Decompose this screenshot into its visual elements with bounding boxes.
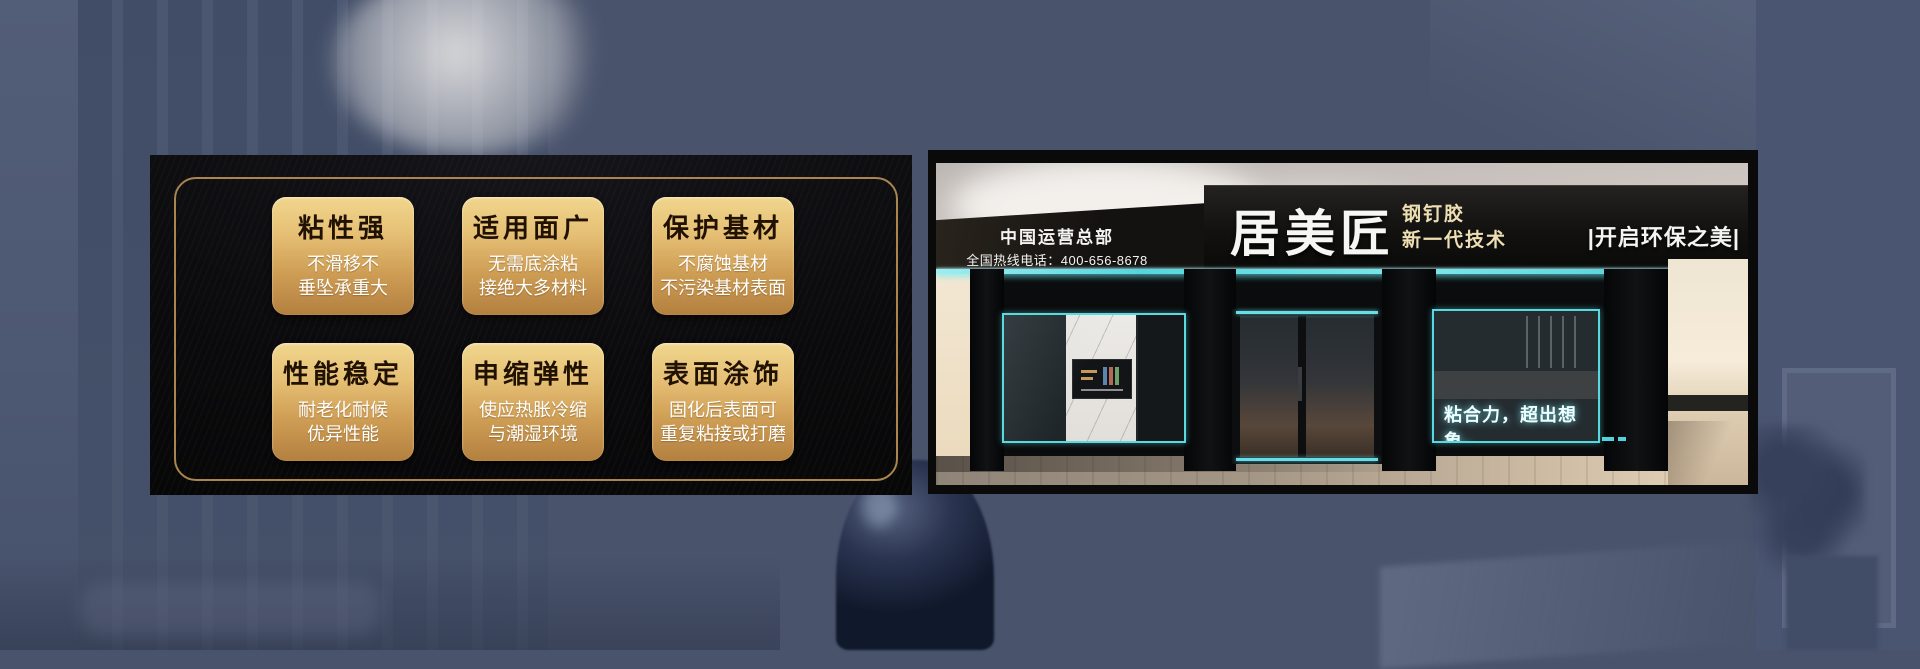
feature-line: 优异性能	[272, 422, 414, 446]
feature-line: 接绝大多材料	[462, 276, 604, 300]
display-window-left	[1002, 313, 1186, 443]
sign-slogan: |开启环保之美|	[1588, 220, 1740, 252]
feature-line: 不滑移不	[272, 252, 414, 276]
feature-line: 重复粘接或打磨	[652, 422, 794, 446]
door-pane	[1240, 316, 1298, 457]
door-led-top	[1236, 311, 1378, 314]
feature-title: 适用面广	[462, 208, 604, 245]
display-window-right: 粘合力，超出想象。	[1432, 309, 1600, 443]
product-line1: 钢钉胶	[1402, 202, 1507, 228]
door-pane	[1306, 316, 1374, 457]
feature-card-protect: 保护基材 不腐蚀基材 不污染基材表面	[652, 197, 794, 315]
feature-title: 性能稳定	[272, 354, 414, 391]
feature-title: 申缩弹性	[462, 354, 604, 391]
door-handle	[1298, 367, 1302, 401]
brand-name: 居美匠	[1230, 194, 1395, 266]
feature-line: 固化后表面可	[652, 398, 794, 422]
storefront-photo-frame: 中国运营总部 全国热线电话：400-656-8678 居美匠 钢钉胶 新一代技术…	[928, 150, 1758, 494]
feature-card-stable: 性能稳定 耐老化耐候 优异性能	[272, 343, 414, 461]
door-led-bottom	[1236, 458, 1378, 461]
feature-title: 表面涂饰	[652, 354, 794, 391]
storefront-photo: 中国运营总部 全国热线电话：400-656-8678 居美匠 钢钉胶 新一代技术…	[936, 163, 1748, 485]
window-interior	[1434, 371, 1598, 399]
background-sofa	[80, 582, 380, 636]
feature-title: 保护基材	[652, 208, 794, 245]
canopy-edge	[1668, 395, 1748, 411]
brand-sign: 居美匠 钢钉胶 新一代技术 |开启环保之美|	[1204, 185, 1748, 270]
feature-line: 无需底涂粘	[462, 252, 604, 276]
hq-title: 中国运营总部	[946, 223, 1168, 248]
feature-line: 不腐蚀基材	[652, 252, 794, 276]
features-panel: 粘性强 不滑移不 垂坠承重大 适用面广 无需底涂粘 接绝大多材料 保护基材 不腐…	[150, 155, 912, 495]
led-dash	[1602, 437, 1614, 441]
feature-line: 与潮湿环境	[462, 422, 604, 446]
facade-pillar	[1184, 269, 1236, 471]
product-line2: 新一代技术	[1402, 228, 1507, 254]
window-slogan: 粘合力，超出想象。	[1444, 401, 1598, 443]
hq-hotline: 全国热线电话：400-656-8678	[946, 250, 1168, 269]
feature-line: 使应热胀冷缩	[462, 398, 604, 422]
sunlit-corner	[1668, 259, 1748, 485]
feature-card-grid: 粘性强 不滑移不 垂坠承重大 适用面广 无需底涂粘 接绝大多材料 保护基材 不腐…	[272, 197, 794, 461]
feature-line: 不污染基材表面	[652, 276, 794, 300]
feature-title: 粘性强	[272, 208, 414, 245]
facade-pillar	[1382, 269, 1436, 471]
background-wall-strip	[0, 0, 78, 650]
corner-shadow	[1668, 421, 1748, 485]
feature-card-adhesion: 粘性强 不滑移不 垂坠承重大	[272, 197, 414, 315]
feature-line: 垂坠承重大	[272, 276, 414, 300]
feature-line: 耐老化耐候	[272, 398, 414, 422]
feature-card-finish: 表面涂饰 固化后表面可 重复粘接或打磨	[652, 343, 794, 461]
entrance-door	[1232, 309, 1382, 464]
feature-card-elastic: 申缩弹性 使应热胀冷缩 与潮湿环境	[462, 343, 604, 461]
product-name: 钢钉胶 新一代技术	[1402, 202, 1507, 253]
facade-pillar	[970, 269, 1004, 471]
led-dash	[1618, 437, 1626, 441]
feature-card-wide-use: 适用面广 无需底涂粘 接绝大多材料	[462, 197, 604, 315]
glass-reflection	[1004, 315, 1184, 441]
